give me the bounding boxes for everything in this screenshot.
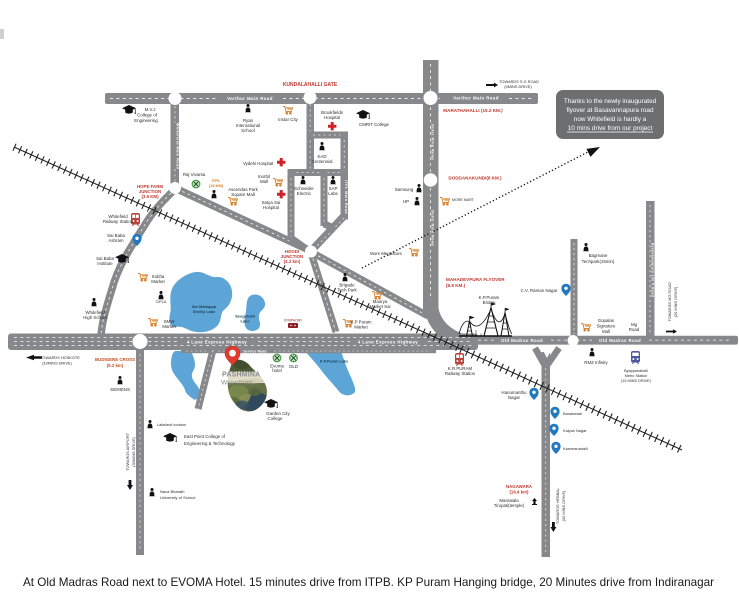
svg-text:Lake: Lake [240,319,250,324]
svg-text:DODDANAKUNDI(8 KM.): DODDANAKUNDI(8 KM.) [448,176,502,181]
svg-text:Varthur Main Road: Varthur Main Road [227,96,273,101]
svg-text:4 Lane Express Highway: 4 Lane Express Highway [187,339,247,344]
svg-text:K.P.Puram Lake: K.P.Puram Lake [320,360,348,364]
svg-text:East Point College of: East Point College of [184,434,226,439]
svg-text:Square Mall: Square Mall [231,192,254,197]
svg-text:Bagmane: Bagmane [589,253,608,258]
svg-text:PASHMINA: PASHMINA [222,372,260,379]
svg-text:(10MINS DRIVE): (10MINS DRIVE) [42,361,72,366]
svg-text:Samsung: Samsung [395,187,414,192]
svg-text:Market: Market [354,325,368,330]
svg-text:CMRIT College: CMRIT College [359,122,389,127]
svg-text:Thanks to the newly inaugurate: Thanks to the newly inaugurated [564,98,657,105]
svg-text:ITPL Main Road: ITPL Main Road [344,180,348,214]
svg-text:School: School [241,128,254,133]
svg-text:SIEMENS: SIEMENS [110,387,130,392]
svg-text:College of: College of [137,113,158,118]
svg-text:SYMPHONY: SYMPHONY [284,319,303,323]
svg-text:Instar City: Instar City [278,117,299,122]
svg-text:NAGAWARA: NAGAWARA [506,484,533,489]
svg-text:Mall: Mall [602,329,610,334]
svg-text:(3.5 KM): (3.5 KM) [141,194,159,199]
svg-text:HP: HP [403,199,409,204]
svg-text:(5MINS DRIVE): (5MINS DRIVE) [504,84,532,89]
svg-text:Service Road: Service Road [243,350,266,354]
svg-text:OLD: OLD [289,364,298,369]
svg-text:Nagar: Nagar [508,395,520,400]
svg-text:(4.2 km): (4.2 km) [284,259,301,264]
svg-text:(16.4 km): (16.4 km) [509,490,529,495]
svg-text:Varthur Main Road: Varthur Main Road [453,96,499,101]
svg-text:Road: Road [629,327,640,332]
svg-text:Vydehi Hospital: Vydehi Hospital [243,161,273,166]
svg-text:TOWARDS MG ROAD: TOWARDS MG ROAD [667,282,672,322]
svg-text:M.V.J: M.V.J [145,107,156,112]
svg-text:College: College [268,416,283,421]
svg-text:Old Madras Road: Old Madras Road [599,338,641,343]
svg-text:Techpark(15min): Techpark(15min) [582,259,615,264]
svg-text:Electric: Electric [297,191,312,196]
svg-text:10 mins drive from our project: 10 mins drive from our project [568,125,653,132]
svg-text:(20 MINS DRIVE): (20 MINS DRIVE) [673,286,678,317]
svg-text:CIPLA: CIPLA [156,300,167,304]
svg-text:Tirupati(temple): Tirupati(temple) [494,503,525,508]
svg-text:Labs: Labs [328,191,338,196]
svg-text:Hospital: Hospital [324,115,340,120]
svg-text:Lakeland tourism: Lakeland tourism [157,423,186,427]
svg-text:Institute: Institute [97,261,113,266]
svg-text:(30MINS DRIVE): (30MINS DRIVE) [131,436,136,466]
svg-text:Old Madras Road: Old Madras Road [501,338,543,343]
svg-text:(30 MINS DRIVE): (30 MINS DRIVE) [561,490,566,521]
svg-text:Byappanahalli: Byappanahalli [624,369,648,373]
svg-text:Outer Ring Road: Outer Ring Road [431,124,435,160]
svg-text:(15 KM): (15 KM) [209,183,224,188]
svg-text:Kalyan Nagar: Kalyan Nagar [563,428,587,433]
svg-text:RMZ Infinity: RMZ Infinity [584,360,608,365]
svg-text:Whitefield Main Road: Whitefield Main Road [175,123,179,170]
svg-text:MORE MART: MORE MART [452,198,475,202]
svg-text:Market: Market [162,324,176,329]
svg-text:Kammanahalli: Kammanahalli [563,446,588,451]
svg-text:TOWARDS AIRPORT: TOWARDS AIRPORT [125,433,130,471]
svg-text:Mall: Mall [260,179,268,184]
svg-text:Centennial: Centennial [312,159,333,164]
svg-text:Tech Park: Tech Park [337,288,357,293]
svg-text:Ashram: Ashram [108,238,123,243]
svg-text:Banaswadi: Banaswadi [563,411,582,416]
svg-text:MARATHAHALLI (15.2 KM.): MARATHAHALLI (15.2 KM.) [443,108,503,113]
svg-text:Nava Bharath: Nava Bharath [160,489,184,494]
svg-text:Outer Ring Road: Outer Ring Road [431,210,435,246]
svg-text:TOWARDS HEBBAL: TOWARDS HEBBAL [555,487,560,524]
svg-text:Engineering: Engineering [134,118,158,123]
svg-text:Hospital: Hospital [263,205,279,210]
svg-text:hotel: hotel [272,368,282,373]
svg-text:TOWARDS HOSKOTE: TOWARDS HOSKOTE [40,355,80,360]
svg-text:Market Sai: Market Sai [370,304,391,309]
svg-text:C.V. Raman Nagar: C.V. Raman Nagar [521,288,558,293]
svg-text:MAHADEVPURA FLYOVER: MAHADEVPURA FLYOVER [446,277,505,282]
svg-text:University of School: University of School [160,495,195,500]
svg-text:(8.8 KM.): (8.8 KM.) [446,283,466,288]
svg-text:Market: Market [151,279,165,284]
svg-text:Railway Station: Railway Station [103,219,134,224]
svg-text:Railway Station: Railway Station [445,371,476,376]
svg-text:(15 MINS DRIVE): (15 MINS DRIVE) [621,379,652,383]
svg-text:now Whitefield is hardly a: now Whitefield is hardly a [574,116,647,123]
svg-text:Metro Station: Metro Station [625,374,648,378]
svg-text:At Old Madras Road next to EVO: At Old Madras Road next to EVOMA Hotel. … [23,576,714,589]
svg-text:Signature: Signature [597,324,616,329]
svg-text:Bridge: Bridge [483,300,496,305]
svg-text:(9.2 km): (9.2 km) [107,363,124,368]
svg-text:KUNDALAHALLI GATE: KUNDALAHALLI GATE [283,82,338,88]
svg-text:Basavannapura 100 ft Road: Basavannapura 100 ft Road [651,243,655,297]
svg-text:4 Lane Express Highway: 4 Lane Express Highway [358,339,418,344]
svg-text:Waterfront: Waterfront [221,380,253,387]
svg-text:High School: High School [83,315,107,320]
svg-text:Shetty Lake: Shetty Lake [193,309,216,314]
svg-text:More Megastore: More Megastore [370,251,403,256]
svg-text:flyover at Basavannapura road: flyover at Basavannapura road [566,107,653,114]
svg-text:Engineering & Technology: Engineering & Technology [184,441,236,446]
svg-text:BUDIGERE CROSS: BUDIGERE CROSS [95,357,135,362]
svg-text:Raj Vivanta: Raj Vivanta [183,172,206,177]
svg-text:Gopalan: Gopalan [598,318,615,323]
